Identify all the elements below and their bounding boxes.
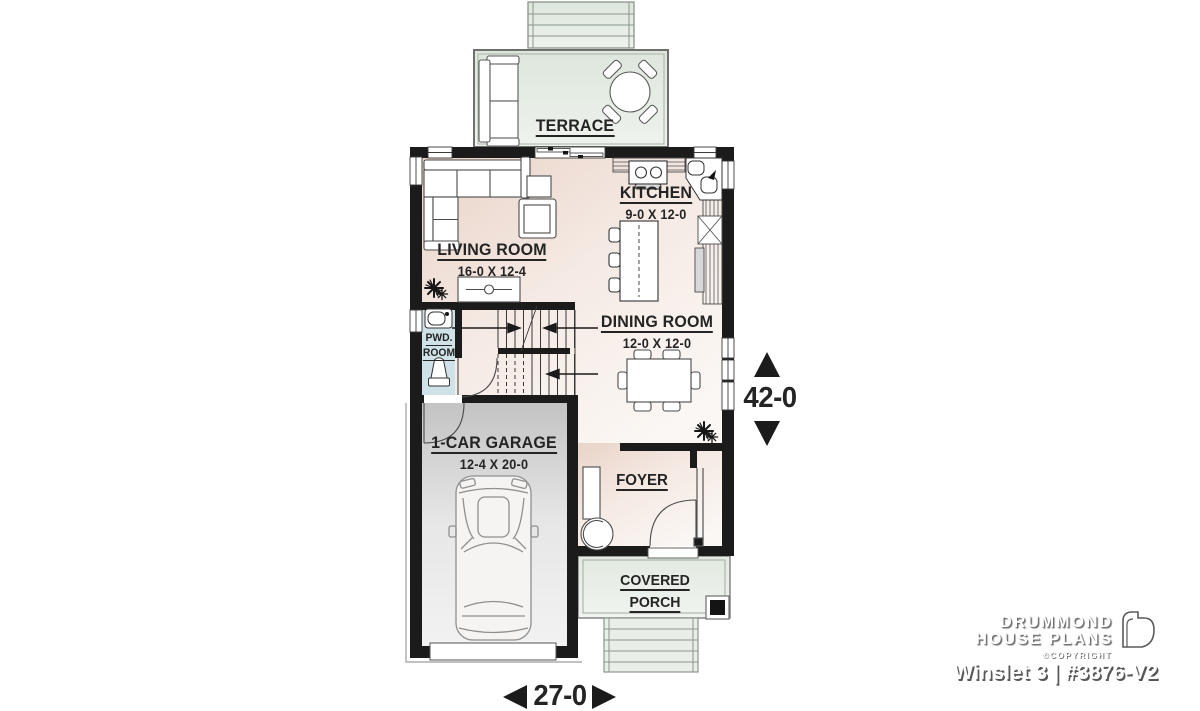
terrace-sofa [479,56,519,146]
terrace-steps [528,2,634,48]
dining-room-size: 12-0 X 12-0 [601,336,713,351]
floor-plan-canvas: TERRACE LIVING ROOM 16-0 X 12-4 KITCHEN … [0,0,1200,711]
living-room-label: LIVING ROOM 16-0 X 12-4 [437,240,546,279]
arrow-up-icon [754,352,780,377]
window [722,161,734,189]
patio-door [535,147,605,159]
window [722,360,734,380]
side-table [527,176,551,197]
garage-label: 1-CAR GARAGE 12-4 X 20-0 [431,433,557,472]
armchair [519,199,556,238]
window [428,147,452,158]
car [449,476,538,640]
width-dimension: 27-0 [533,680,586,711]
dining-room-label: DINING ROOM 12-0 X 12-0 [601,312,713,351]
foyer-round-chair [581,518,613,550]
window [410,310,422,332]
porch-steps [604,618,698,672]
window [694,147,716,158]
arrow-left-icon [503,685,527,709]
powder-room-label: PWD. ROOM [423,331,455,361]
floor-plan-drawing [0,0,1200,711]
garage-size: 12-4 X 20-0 [431,457,557,472]
living-room-size: 16-0 X 12-4 [437,264,546,279]
powder-room-sink [425,309,452,328]
foyer-bench [583,467,600,519]
kitchen-island [609,221,658,301]
window [410,157,422,185]
arrow-down-icon [754,421,780,446]
arrow-right-icon [592,685,616,709]
kitchen-label: KITCHEN 9-0 X 12-0 [620,183,692,222]
depth-dimension: 42-0 [743,382,796,415]
porch-column [706,596,729,619]
kitchen-size: 9-0 X 12-0 [620,207,692,222]
foyer-label: FOYER [616,472,668,491]
dining-set [618,350,700,411]
window [722,382,734,410]
brand-copyright: ©COPYRIGHT [953,651,1112,660]
drummond-door-icon [1120,607,1158,649]
console-table [458,277,520,302]
covered-porch-label: COVERED PORCH [620,569,690,613]
window [722,338,734,358]
terrace-label: TERRACE [536,116,615,137]
garage-door [430,643,556,660]
brand-name: DRUMMOND HOUSE PLANS [975,615,1113,649]
plan-title: Winslet 3 | #3876-V2 [953,661,1158,685]
drummond-branding: DRUMMOND HOUSE PLANS ©COPYRIGHT Winslet … [953,607,1158,685]
